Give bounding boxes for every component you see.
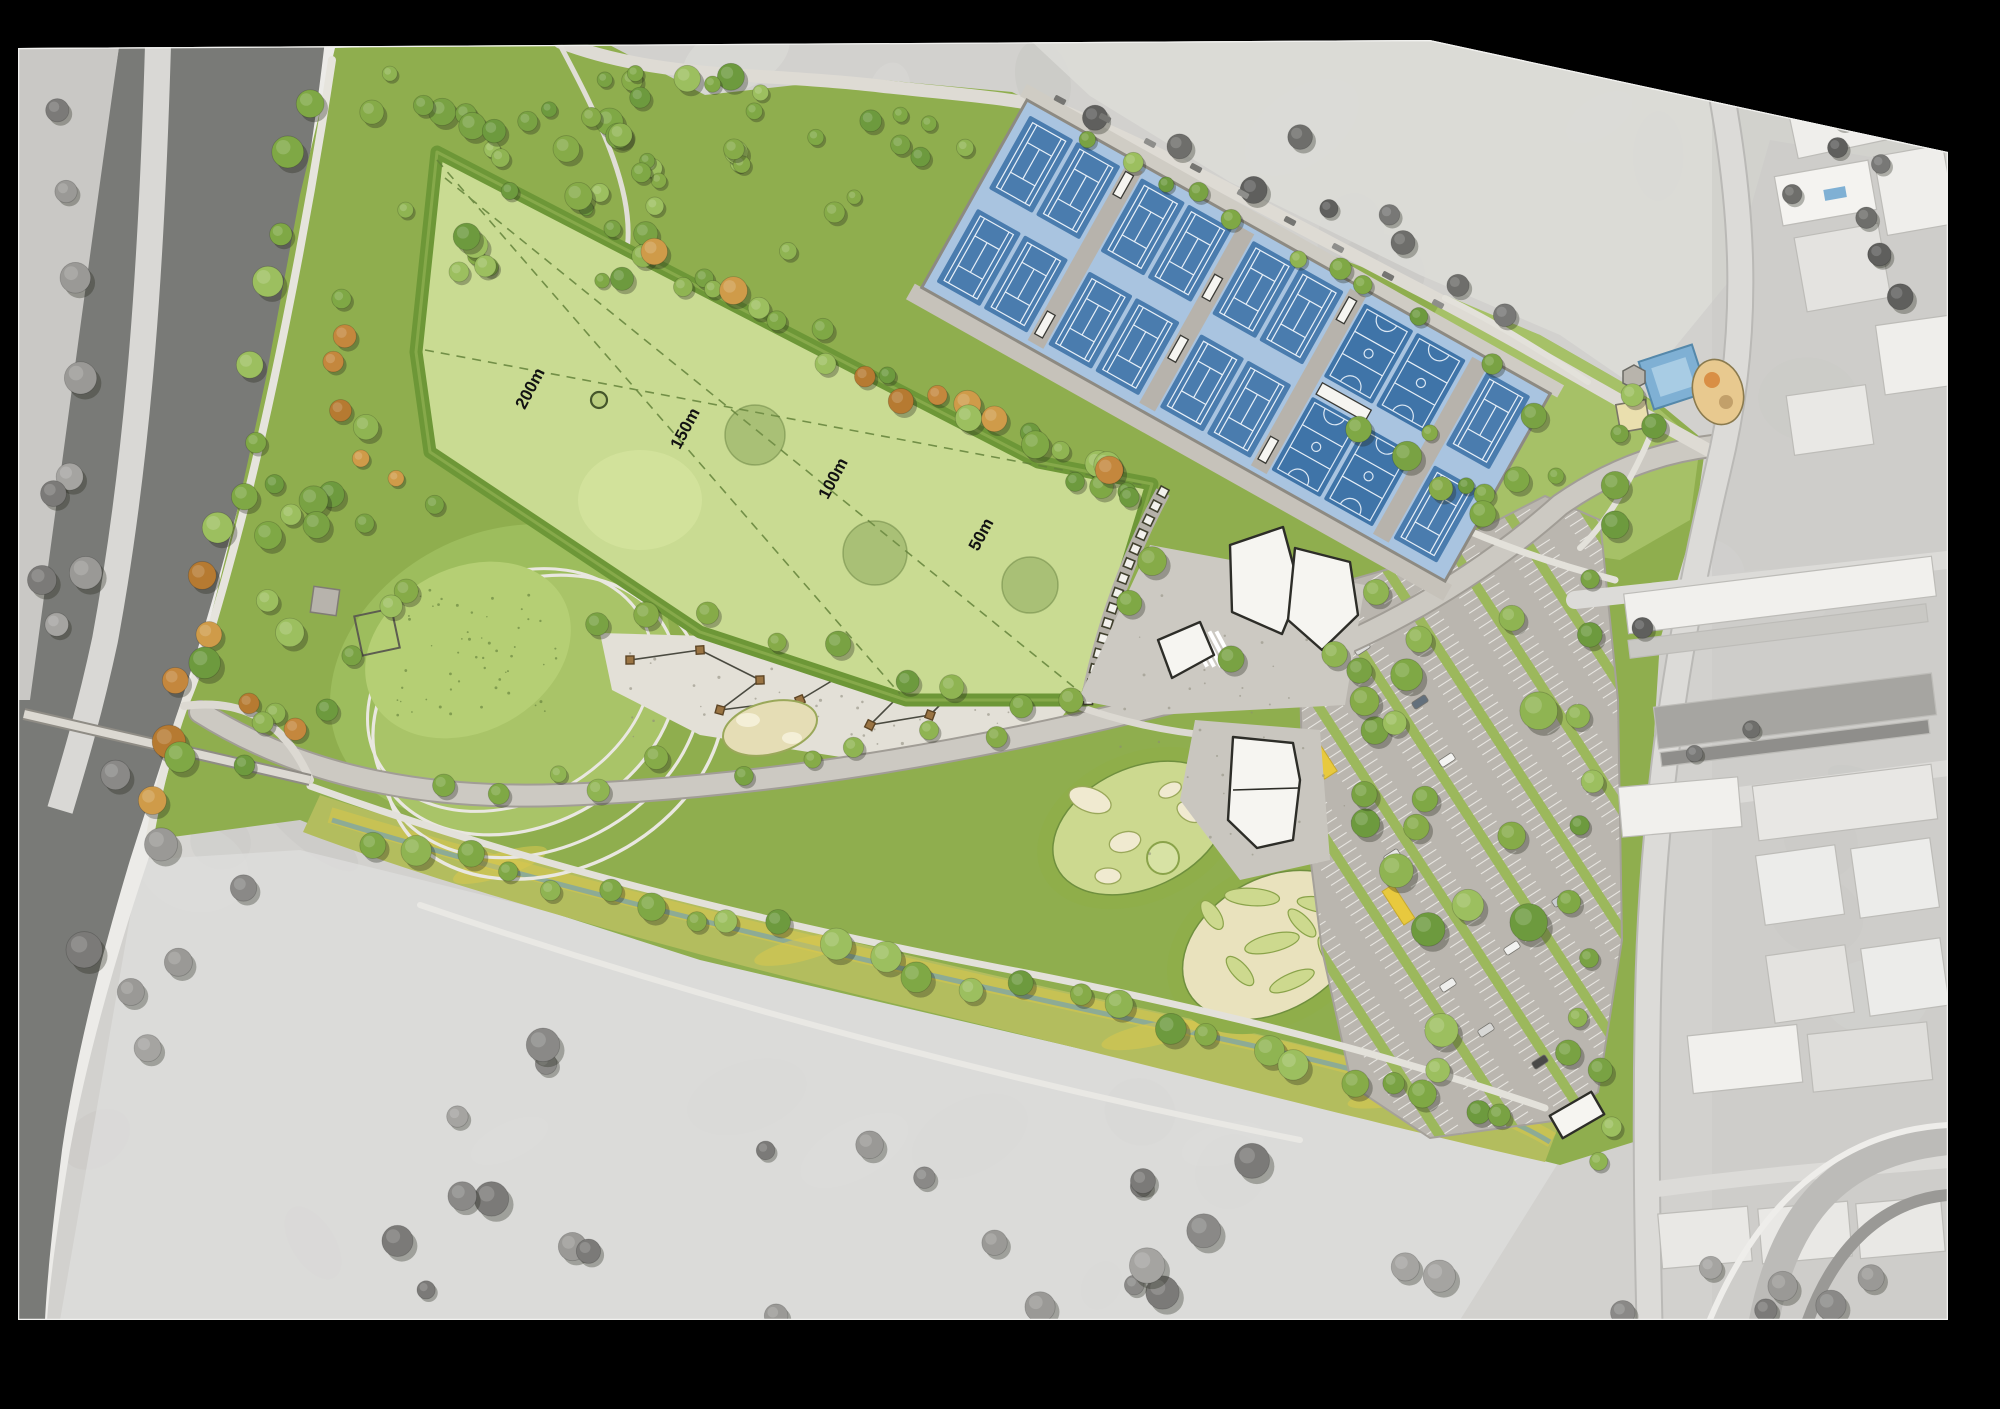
masterplan-image: 200m 150m 100m 50m: [0, 0, 2000, 1409]
lookout-deck: [310, 586, 339, 615]
masterplan-svg: 200m 150m 100m 50m: [0, 0, 2000, 1409]
community-building: [1228, 737, 1300, 848]
centre-marker: [591, 392, 607, 408]
